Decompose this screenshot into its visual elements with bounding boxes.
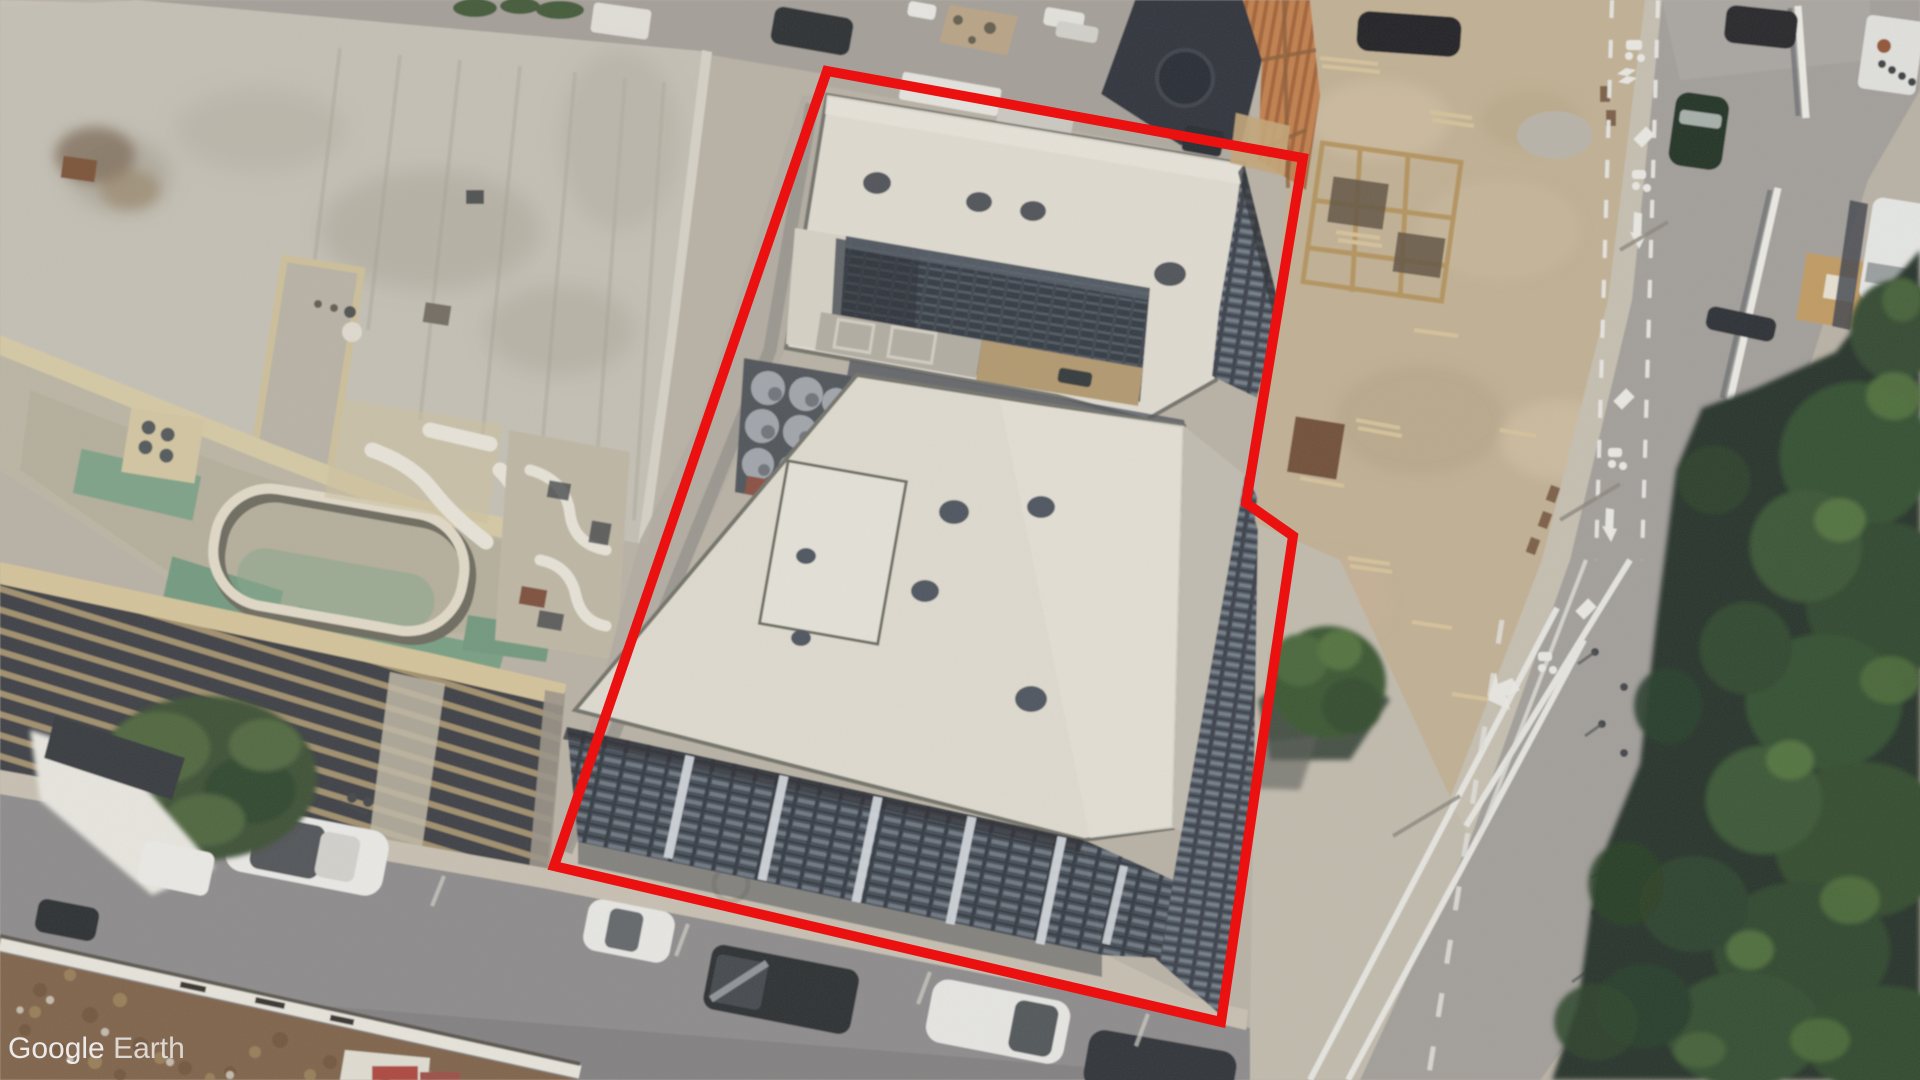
svg-text:Google Earth: Google Earth [8, 1032, 185, 1065]
